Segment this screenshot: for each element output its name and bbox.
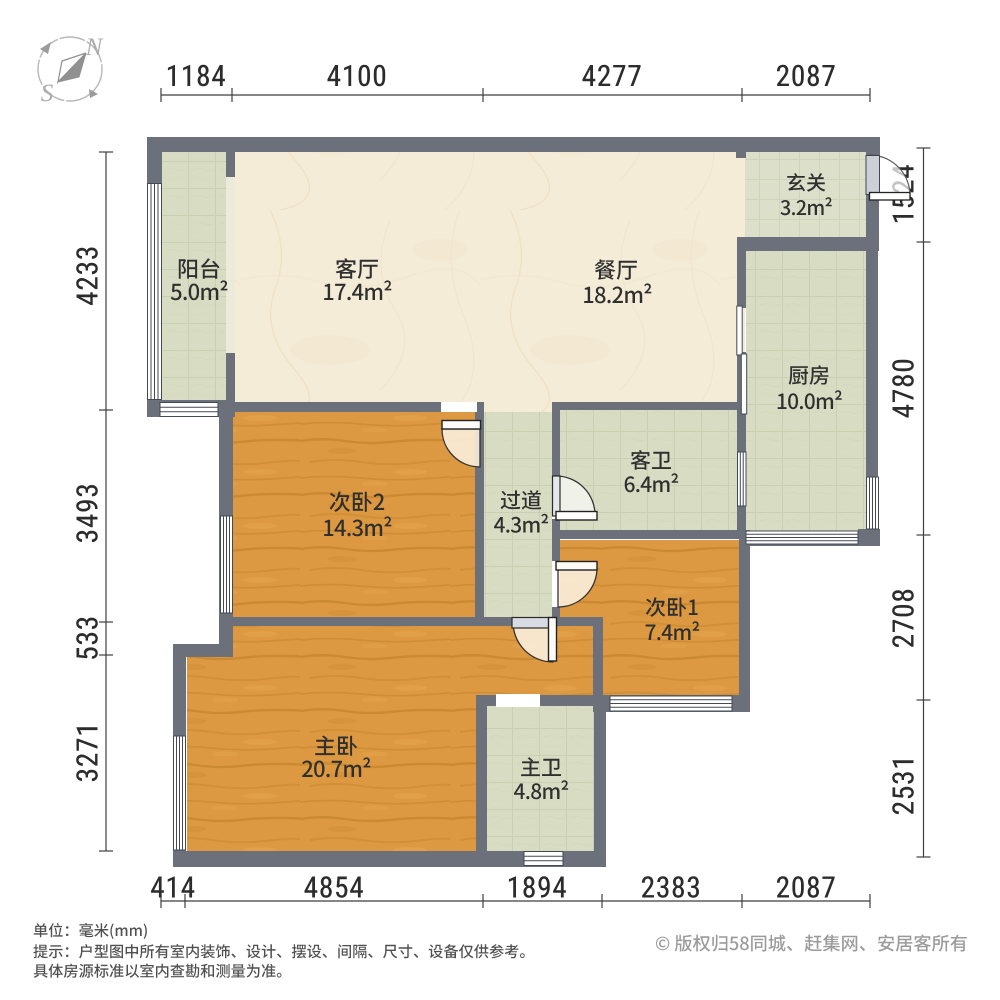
svg-text:S: S [41,80,54,107]
svg-text:N: N [85,34,104,61]
